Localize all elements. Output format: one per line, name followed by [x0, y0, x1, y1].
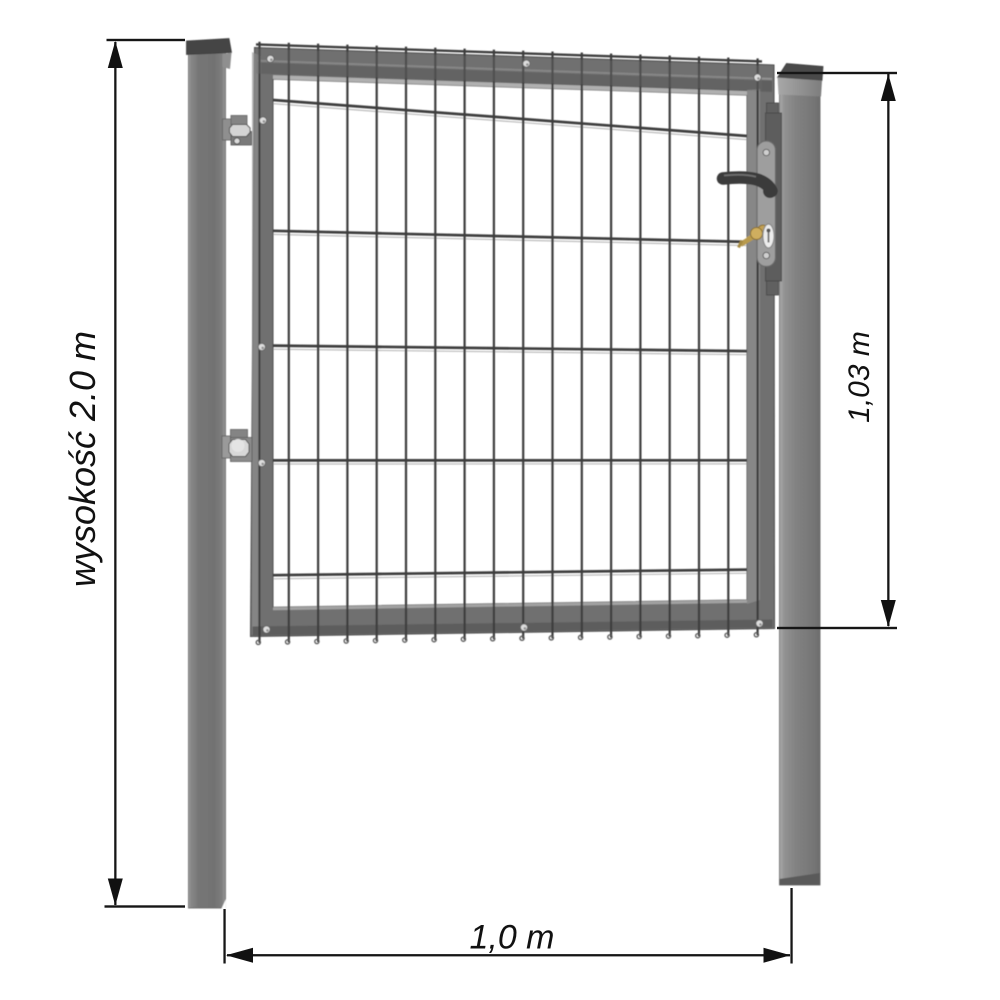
svg-text:1,03 m: 1,03 m [843, 331, 876, 423]
svg-text:wysokość 2.0 m: wysokość 2.0 m [62, 331, 103, 587]
svg-text:1,0 m: 1,0 m [469, 919, 554, 957]
